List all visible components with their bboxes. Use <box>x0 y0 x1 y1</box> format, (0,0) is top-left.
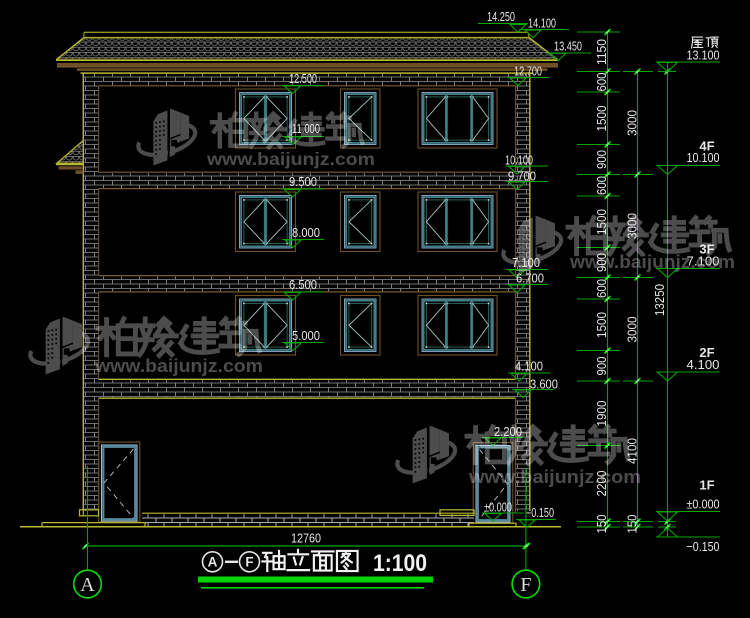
svg-text:10.100: 10.100 <box>505 154 533 168</box>
svg-text:www.baijunjz.com: www.baijunjz.com <box>569 251 735 272</box>
svg-text:12760: 12760 <box>291 531 321 546</box>
svg-text:12.700: 12.700 <box>514 65 542 79</box>
svg-text:14.250: 14.250 <box>487 10 515 24</box>
svg-text:www.baijunjz.com: www.baijunjz.com <box>206 149 375 169</box>
svg-text:−0.150: −0.150 <box>526 506 554 520</box>
svg-text:6.700: 6.700 <box>516 272 544 286</box>
svg-text:600: 600 <box>595 176 609 195</box>
svg-text:±0.000: ±0.000 <box>484 501 512 515</box>
svg-text:3000: 3000 <box>626 316 640 342</box>
svg-text:14.100: 14.100 <box>528 17 556 31</box>
svg-text:1500: 1500 <box>595 312 609 338</box>
svg-text:9.700: 9.700 <box>508 170 536 184</box>
svg-text:12.500: 12.500 <box>289 72 317 86</box>
svg-text:www.baijunjz.com: www.baijunjz.com <box>94 355 263 376</box>
svg-text:F: F <box>245 555 253 570</box>
svg-text:6.500: 6.500 <box>289 278 317 292</box>
svg-text:1:100: 1:100 <box>373 550 427 577</box>
svg-text:13250: 13250 <box>653 284 667 316</box>
svg-text:13.100: 13.100 <box>687 48 720 63</box>
svg-text:13.450: 13.450 <box>554 40 582 54</box>
svg-text:600: 600 <box>595 279 609 298</box>
svg-text:4.100: 4.100 <box>687 357 720 372</box>
svg-text:A: A <box>208 555 218 570</box>
svg-text:1900: 1900 <box>595 400 609 426</box>
svg-text:A: A <box>80 574 95 596</box>
svg-text:1500: 1500 <box>595 105 609 131</box>
svg-text:150: 150 <box>626 514 640 533</box>
svg-text:4.100: 4.100 <box>515 360 543 374</box>
svg-text:1F: 1F <box>699 478 714 493</box>
svg-text:900: 900 <box>595 356 609 375</box>
svg-text:3000: 3000 <box>626 110 640 136</box>
svg-text:9.500: 9.500 <box>289 175 317 189</box>
svg-text:www.baijunjz.com: www.baijunjz.com <box>468 466 641 487</box>
svg-text:8.000: 8.000 <box>292 226 320 240</box>
svg-text:150: 150 <box>595 514 609 533</box>
svg-text:10.100: 10.100 <box>687 150 720 165</box>
svg-text:600: 600 <box>595 72 609 91</box>
svg-text:−0.150: −0.150 <box>687 539 720 554</box>
svg-text:900: 900 <box>595 150 609 169</box>
svg-text:±0.000: ±0.000 <box>687 497 720 512</box>
svg-text:5.000: 5.000 <box>292 329 320 343</box>
svg-text:F: F <box>520 574 531 596</box>
svg-text:3.600: 3.600 <box>530 378 558 392</box>
svg-text:1150: 1150 <box>595 39 609 65</box>
